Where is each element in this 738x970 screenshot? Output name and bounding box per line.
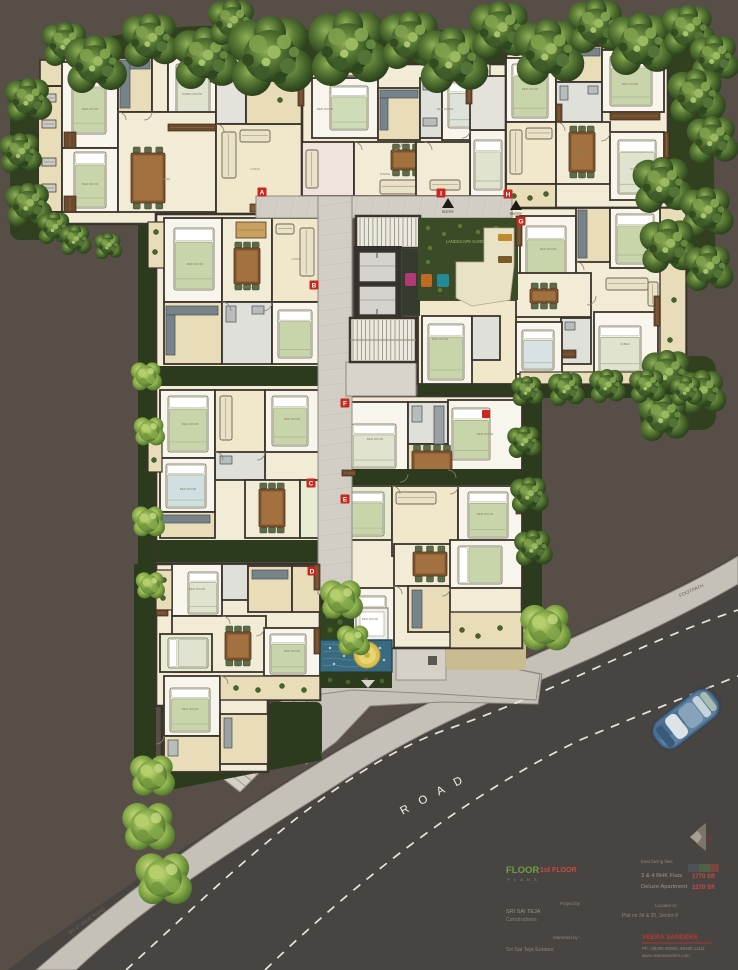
svg-text:3 & 4 BHK Flats: 3 & 4 BHK Flats [641, 873, 682, 879]
svg-text:Constructions: Constructions [506, 917, 537, 923]
svg-text:DINING: DINING [540, 297, 551, 301]
svg-text:BED ROOM: BED ROOM [477, 432, 494, 436]
svg-text:B: B [312, 283, 317, 290]
svg-text:DINING: DINING [242, 285, 253, 289]
svg-text:DINING: DINING [237, 645, 248, 649]
svg-text:DINING: DINING [420, 562, 431, 566]
svg-text:C: C [309, 481, 314, 488]
svg-text:VEERA SANDERS: VEERA SANDERS [642, 934, 698, 941]
svg-text:BED ROOM: BED ROOM [432, 337, 449, 341]
svg-text:A: A [260, 190, 265, 197]
svg-text:Project by :: Project by : [560, 901, 583, 906]
svg-text:BED ROOM: BED ROOM [189, 587, 206, 591]
svg-text:BED ROOM: BED ROOM [437, 107, 454, 111]
svg-text:BED ROOM: BED ROOM [367, 437, 384, 441]
svg-text:Plot no 34 & 35, Sector-9: Plot no 34 & 35, Sector-9 [622, 913, 678, 919]
svg-text:BED ROOM: BED ROOM [540, 247, 557, 251]
svg-text:Sri Sai Teja Estates: Sri Sai Teja Estates [506, 947, 554, 953]
svg-text:DINING: DINING [575, 152, 586, 156]
svg-text:Deluxe Apartment: Deluxe Apartment [641, 884, 687, 890]
svg-text:BED ROOM: BED ROOM [284, 649, 301, 653]
svg-text:www.veerasanders.com: www.veerasanders.com [642, 953, 690, 958]
svg-text:F: F [343, 401, 347, 408]
svg-text:BED ROOM: BED ROOM [82, 182, 99, 186]
svg-text:G: G [518, 219, 523, 226]
svg-text:BED ROOM: BED ROOM [362, 617, 379, 621]
svg-text:ENTRY: ENTRY [442, 210, 455, 214]
svg-text:LIVING: LIVING [291, 257, 302, 261]
svg-text:BED ROOM: BED ROOM [180, 487, 197, 491]
svg-text:SRI SAI TEJA: SRI SAI TEJA [506, 909, 541, 915]
svg-text:H: H [506, 192, 511, 199]
svg-text:M.BED ROOM: M.BED ROOM [182, 92, 202, 96]
svg-text:BED ROOM: BED ROOM [622, 82, 639, 86]
svg-text:BED ROOM: BED ROOM [82, 107, 99, 111]
svg-text:FLOOR: FLOOR [506, 865, 539, 876]
svg-text:Marketed by :: Marketed by : [553, 935, 580, 940]
svg-text:BED ROOM: BED ROOM [522, 87, 539, 91]
svg-text:N: N [707, 836, 712, 843]
svg-text:M.BED: M.BED [630, 167, 640, 171]
svg-text:BED ROOM: BED ROOM [187, 262, 204, 266]
svg-text:1st FLOOR: 1st FLOOR [540, 867, 577, 874]
svg-text:D: D [310, 569, 315, 576]
svg-text:DINING: DINING [380, 172, 391, 176]
svg-text:LIVING: LIVING [250, 167, 261, 171]
svg-text:2270 Sft: 2270 Sft [692, 885, 715, 891]
svg-text:M.BED: M.BED [620, 342, 630, 346]
svg-text:LANDSCAPE GARDEN: LANDSCAPE GARDEN [446, 239, 490, 244]
svg-text:ENTRY: ENTRY [510, 212, 523, 216]
svg-text:E: E [343, 497, 348, 504]
svg-text:BED ROOM: BED ROOM [477, 512, 494, 516]
svg-text:I: I [440, 191, 442, 198]
svg-text:Located at :: Located at : [655, 903, 679, 908]
svg-text:BED ROOM: BED ROOM [284, 417, 301, 421]
svg-text:P L A N S: P L A N S [507, 877, 538, 882]
svg-text:East facing flats: East facing flats [641, 859, 674, 864]
svg-text:BED ROOM: BED ROOM [182, 707, 199, 711]
svg-text:Ph : 98480 00000, 98490 11111: Ph : 98480 00000, 98490 11111 [642, 946, 705, 951]
svg-text:DINING: DINING [160, 177, 171, 181]
svg-text:BED ROOM: BED ROOM [317, 107, 334, 111]
svg-text:BED ROOM: BED ROOM [182, 422, 199, 426]
svg-text:1770 Sft: 1770 Sft [692, 874, 715, 880]
